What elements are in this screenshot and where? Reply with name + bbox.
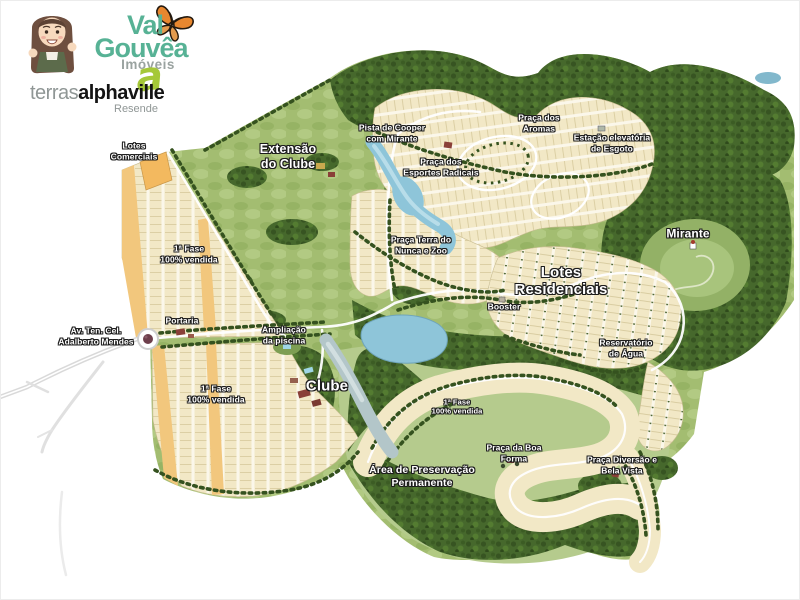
label-lotes-comerciais: Lotes Comerciais — [111, 140, 158, 161]
external-roads — [0, 338, 140, 575]
page: { "branding": { "agency_name_line1": "Va… — [0, 0, 800, 600]
label-mirante: Mirante — [666, 227, 709, 242]
label-praca-terra: Praça Terra do Nunca e Zoo — [391, 234, 451, 255]
developer-name: alphaville — [78, 82, 164, 104]
developer-logo: terrasalphaville — [30, 82, 164, 105]
label-praca-diversao: Praça Diversão e Bela Vista — [587, 454, 657, 475]
label-extensao-clube: Extensão do Clube — [260, 142, 316, 172]
developer-prefix: terras — [30, 82, 78, 104]
label-booster: Booster — [488, 302, 521, 313]
label-portaria: Portaria — [166, 316, 199, 327]
label-praca-aromas: Praça dos Aromas — [518, 112, 560, 133]
label-av-adalberto: Av. Ten. Cel. Adalberto Mendes — [58, 325, 133, 346]
label-fase1-a: 1ª Fase 100% vendida — [160, 243, 217, 264]
label-praca-esportes: Praça dos Esportes Radicais — [403, 156, 478, 177]
label-ampliacao-piscina: Ampliação da piscina — [262, 324, 306, 345]
label-clube: Clube — [306, 377, 348, 394]
label-fase1-c: 1ª Fase 100% vendida — [432, 398, 483, 417]
developer-city: Resende — [114, 103, 158, 115]
label-pista-cooper: Pista de Cooper com Mirante — [359, 122, 425, 143]
label-lotes-residenciais: Lotes Residenciais — [515, 264, 608, 299]
label-fase1-b: 1ª Fase 100% vendida — [187, 383, 244, 404]
label-reservatorio: Reservatório de Água — [599, 337, 652, 358]
label-estacao-esgoto: Estação elevatória de Esgoto — [574, 132, 650, 153]
agency-logo: Val Gouvêa Imóveis a terrasalphaville Re… — [18, 2, 218, 122]
label-area-preservacao: Área de Preservação Permanente — [369, 464, 475, 490]
agent-avatar — [24, 6, 80, 76]
roundabout — [138, 329, 158, 349]
label-praca-boa-forma: Praça da Boa Forma — [486, 442, 541, 463]
